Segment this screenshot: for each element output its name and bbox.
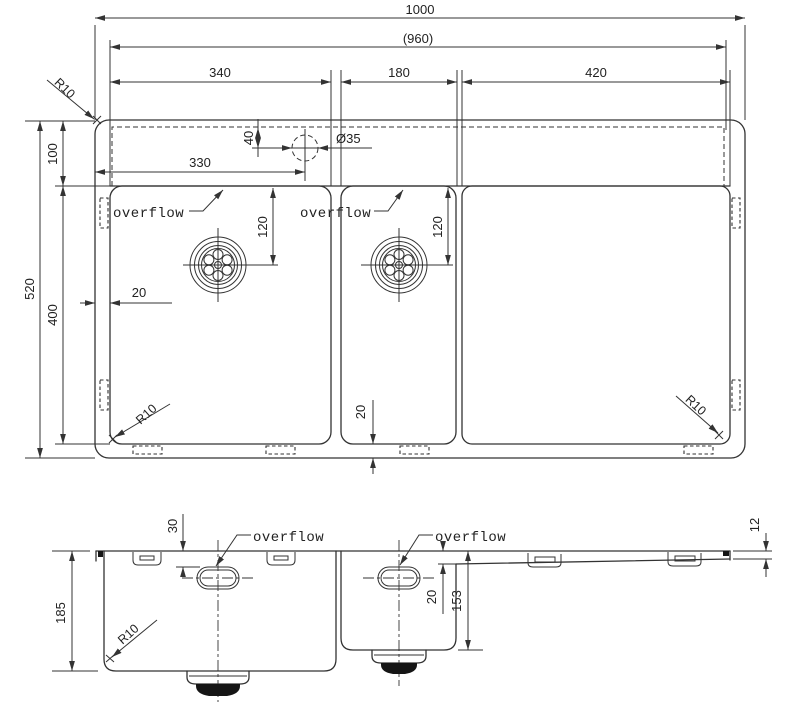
sink-technical-drawing: 1000 (960) 340 180 420 520 100 400 330 4…	[0, 0, 800, 703]
overflow-label-right: overflow	[300, 206, 371, 222]
drawing-svg: 1000 (960) 340 180 420 520 100 400 330 4…	[0, 0, 800, 703]
dim-bowl2-width: 180	[388, 65, 410, 80]
dim-ledge-depth: 100	[45, 143, 60, 165]
dim-tap-hole-offset: 330	[189, 155, 211, 170]
overflow-label-front-left: overflow	[253, 530, 324, 546]
dim-overflow-drop: 30	[165, 519, 180, 533]
dim-overall-depth: 520	[22, 278, 37, 300]
clip-right-bottom	[732, 380, 740, 410]
top-view: 1000 (960) 340 180 420 520 100 400 330 4…	[22, 2, 745, 474]
clip-bottom-3	[400, 446, 429, 454]
dim-bowl-depth: 400	[45, 304, 60, 326]
dim-overall-width: 1000	[406, 2, 435, 17]
clip-left-top	[100, 198, 108, 228]
sink-outer-edge	[95, 120, 745, 458]
radius-top-left: R10	[52, 75, 78, 101]
extension-lines	[25, 25, 745, 458]
clip-left-bottom	[100, 380, 108, 410]
radius-front-bottom-left: R10	[115, 621, 141, 647]
dim-bowl1-depth: 185	[53, 602, 68, 624]
dim-bowl2-depth: 153	[449, 590, 464, 612]
dim-drainboard-drop: 20	[424, 590, 439, 604]
tap-hole	[292, 129, 318, 181]
front-view: 185 30 20 153 12 R10 overflow overflow	[52, 514, 772, 702]
dim-drain2-offset: 120	[430, 216, 445, 238]
radius-bottom-right: R10	[683, 392, 709, 418]
overflow-label-front-right: overflow	[435, 530, 506, 546]
left-bowl	[110, 186, 331, 444]
dim-bottom-gap: 20	[353, 405, 368, 419]
dim-tap-hole-setback: 40	[241, 131, 256, 145]
clip-bottom-2	[266, 446, 295, 454]
dim-drainboard-width: 420	[585, 65, 607, 80]
clip-bottom-4	[684, 446, 713, 454]
dim-drain1-offset: 120	[255, 216, 270, 238]
dim-tap-hole-diameter: Ø35	[336, 131, 361, 146]
clip-right-top	[732, 198, 740, 228]
clip-bottom-1	[133, 446, 162, 454]
dim-side-gap: 20	[132, 285, 146, 300]
centerlines	[182, 540, 435, 702]
left-drain	[183, 228, 278, 302]
middle-drain	[361, 228, 453, 302]
overflow-label-left: overflow	[113, 206, 184, 222]
dim-bowl1-width: 340	[209, 65, 231, 80]
left-bowl-section	[104, 551, 336, 671]
mounting-clips	[100, 198, 740, 454]
dim-inner-width: (960)	[403, 31, 433, 46]
dim-edge-height: 12	[747, 518, 762, 532]
